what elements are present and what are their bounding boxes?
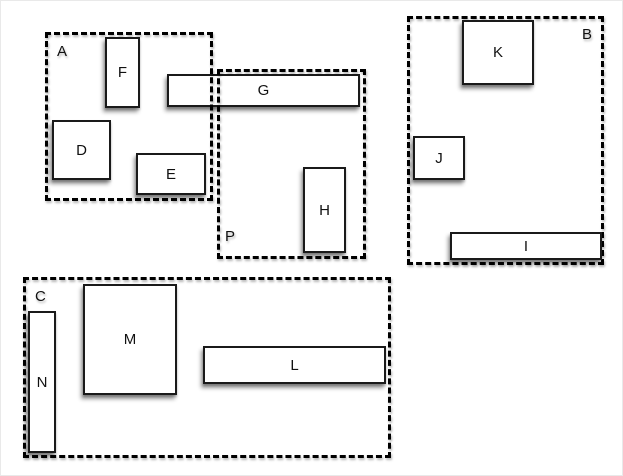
group-label-A: A <box>57 44 67 59</box>
box-label-M: M <box>124 331 137 348</box>
box-label-H: H <box>319 202 330 219</box>
box-J: J <box>413 136 465 180</box>
box-L: L <box>203 346 386 384</box>
box-label-E: E <box>166 166 176 183</box>
box-label-L: L <box>290 357 298 374</box>
box-F: F <box>105 37 140 108</box>
box-K: K <box>462 20 534 85</box>
box-label-J: J <box>435 150 443 167</box>
box-label-D: D <box>76 142 87 159</box>
box-label-I: I <box>524 238 528 255</box>
box-I: I <box>450 232 602 260</box>
box-label-F: F <box>118 64 127 81</box>
box-E: E <box>136 153 206 195</box>
box-label-N: N <box>37 374 48 391</box>
group-label-C: C <box>35 289 46 304</box>
box-H: H <box>303 167 346 253</box>
diagram-canvas: A P B C F G D E H K J I M N L <box>0 0 623 476</box>
box-D: D <box>52 120 111 180</box>
box-label-K: K <box>493 44 503 61</box>
box-N: N <box>28 311 56 453</box>
group-label-P: P <box>225 229 235 244</box>
group-label-B: B <box>582 27 592 42</box>
box-M: M <box>83 284 177 395</box>
